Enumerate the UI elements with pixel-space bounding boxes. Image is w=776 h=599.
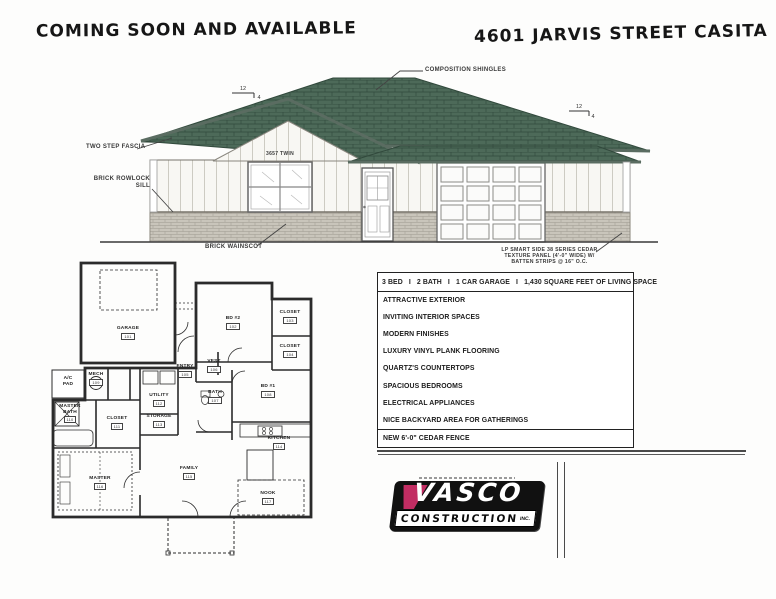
room-number-box: 111: [111, 423, 124, 430]
flyer-page: 12 4 12 4: [0, 0, 776, 599]
room-name: NOOK: [256, 491, 280, 497]
logo-box: VASCO CONSTRUCTION INC.: [389, 481, 545, 531]
room-label-family: FAMILY115: [174, 466, 204, 480]
room-label-closet: CLOSET103: [275, 310, 305, 324]
room-name: BD #2: [216, 316, 250, 322]
siding-spec-label: LP SMART SIDE 38 SERIES CEDAR TEXTURE PA…: [492, 247, 607, 266]
room-number-box: 105: [178, 371, 191, 378]
room-label-bd-2: BD #2102: [216, 316, 250, 330]
room-name: CLOSET: [275, 310, 305, 316]
room-number-box: 113: [153, 421, 166, 428]
brick-rowlock-line2: SILL: [88, 183, 150, 190]
room-label-kitchen: KITCHEN114: [263, 436, 295, 450]
floor-plan-drawing: [52, 263, 311, 555]
sheet-edge-line-left: [557, 462, 558, 558]
room-number-box: 103: [283, 317, 296, 324]
room-number-box: 112: [153, 400, 166, 407]
elevation-drawing: 12 4 12 4: [100, 71, 658, 252]
feature-item: INVITING INTERIOR SPACES: [378, 309, 633, 326]
room-number-box: 102: [226, 323, 239, 330]
room-number-box: 104: [283, 351, 296, 358]
twin-window: [248, 162, 312, 212]
room-number-box: 110: [64, 416, 77, 423]
room-name: MASTER BATH: [55, 404, 85, 415]
room-label-bd-1: BD #1108: [253, 384, 283, 398]
room-label-mech: MECH109: [85, 372, 107, 386]
horizontal-rule-top: [377, 450, 746, 452]
room-name: FAMILY: [174, 466, 204, 472]
logo-brand-text: VASCO: [392, 481, 545, 507]
slope-run-left: 4: [257, 95, 260, 101]
room-label-bath: BATH107: [204, 390, 226, 404]
room-number-box: 115: [183, 473, 196, 480]
room-number-box: 117: [262, 498, 275, 505]
entry-door: [362, 168, 393, 241]
room-number-box: 107: [208, 397, 221, 404]
feature-item: ATTRACTIVE EXTERIOR: [378, 292, 633, 309]
two-step-fascia-label: TWO STEP FASCIA: [86, 144, 145, 151]
room-label-a-c-pad: A/C PAD: [58, 376, 78, 387]
sheet-edge-line-right: [564, 462, 565, 558]
corner-trim-left: [150, 160, 157, 212]
feature-item: SPACIOUS BEDROOMS: [378, 378, 633, 395]
slope-rise-left: 12: [240, 86, 246, 92]
room-name: BD #1: [253, 384, 283, 390]
room-label-nook: NOOK117: [256, 491, 280, 505]
logo-tagline-smudge: [419, 477, 515, 479]
plan-garage-walls: [81, 263, 175, 363]
room-name: CLOSET: [102, 416, 132, 422]
room-name: UTILITY: [145, 393, 173, 399]
logo-sub-text: CONSTRUCTION: [400, 513, 519, 525]
feature-item: NICE BACKYARD AREA FOR GATHERINGS: [378, 412, 633, 429]
logo-suffix-text: INC.: [520, 516, 531, 522]
room-name: GARAGE: [106, 326, 150, 332]
feature-item: LUXURY VINYL PLANK FLOORING: [378, 343, 633, 360]
brick-wainscot-label: BRICK WAINSCOT: [205, 244, 262, 251]
room-label-vest: VEST106: [202, 359, 226, 373]
room-label-master-bath: MASTER BATH110: [55, 404, 85, 424]
siding-spec-line3: BATTEN STRIPS @ 16" O.C.: [492, 259, 607, 265]
room-number-box: 114: [273, 443, 286, 450]
features-list: ATTRACTIVE EXTERIORINVITING INTERIOR SPA…: [378, 292, 633, 447]
room-label-garage: GARAGE101: [106, 326, 150, 340]
room-number-box: 108: [261, 391, 274, 398]
garage-door: [437, 163, 545, 242]
feature-item: NEW 6'-0" CEDAR FENCE: [378, 429, 633, 447]
room-name: ENTRY: [172, 364, 198, 370]
room-label-utility: UTILITY112: [145, 393, 173, 407]
room-name: MASTER: [85, 476, 115, 482]
corner-trim-right: [623, 162, 630, 212]
room-number-box: 106: [207, 366, 220, 373]
room-number-box: 109: [89, 379, 102, 386]
horizontal-rule-bottom: [378, 454, 745, 455]
room-name: STORAGE: [143, 414, 175, 420]
room-name: BATH: [204, 390, 226, 396]
logo-sub-bar: CONSTRUCTION INC.: [394, 510, 536, 527]
slope-rise-right: 12: [576, 104, 582, 110]
page-title: COMING SOON AND AVAILABLE: [36, 18, 357, 41]
room-name: MECH: [85, 372, 107, 378]
features-box: 3 BED I 2 BATH I 1 CAR GARAGE I 1,430 SQ…: [377, 272, 634, 448]
features-header: 3 BED I 2 BATH I 1 CAR GARAGE I 1,430 SQ…: [378, 273, 633, 292]
room-number-box: 101: [121, 333, 134, 340]
room-label-entry: ENTRY105: [172, 364, 198, 378]
room-name: VEST: [202, 359, 226, 365]
roof: [141, 78, 650, 163]
slope-run-right: 4: [591, 114, 594, 120]
room-label-closet: CLOSET104: [275, 344, 305, 358]
room-name: CLOSET: [275, 344, 305, 350]
room-number-box: 116: [94, 483, 107, 490]
builder-logo: VASCO CONSTRUCTION INC.: [390, 477, 544, 537]
room-label-master: MASTER116: [85, 476, 115, 490]
room-name: A/C PAD: [58, 376, 78, 387]
window-size-label: 3657 TWIN: [255, 151, 305, 158]
feature-item: MODERN FINISHES: [378, 326, 633, 343]
feature-item: QUARTZ'S COUNTERTOPS: [378, 360, 633, 377]
composition-shingles-label: COMPOSITION SHINGLES: [425, 67, 506, 74]
feature-item: ELECTRICAL APPLIANCES: [378, 395, 633, 412]
room-label-closet: CLOSET111: [102, 416, 132, 430]
room-name: KITCHEN: [263, 436, 295, 442]
brick-rowlock-label: BRICK ROWLOCK SILL: [88, 176, 150, 190]
room-label-storage: STORAGE113: [143, 414, 175, 428]
brick-rowlock-line1: BRICK ROWLOCK: [88, 176, 150, 183]
